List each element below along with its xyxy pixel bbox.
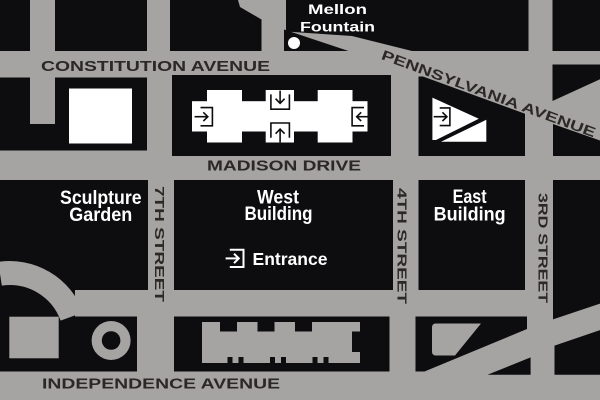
svg-text:MADISON DRIVE: MADISON DRIVE xyxy=(207,158,361,174)
svg-text:Garden: Garden xyxy=(69,205,132,226)
svg-text:INDEPENDENCE AVENUE: INDEPENDENCE AVENUE xyxy=(42,377,280,393)
svg-text:Building: Building xyxy=(434,205,506,226)
svg-text:Entrance: Entrance xyxy=(253,249,328,269)
svg-text:3RD STREET: 3RD STREET xyxy=(536,193,551,303)
svg-text:Mellon: Mellon xyxy=(308,1,367,17)
svg-text:Fountain: Fountain xyxy=(300,18,375,34)
svg-text:4TH STREET: 4TH STREET xyxy=(394,188,409,304)
svg-text:Building: Building xyxy=(245,204,313,225)
svg-text:CONSTITUTION AVENUE: CONSTITUTION AVENUE xyxy=(41,58,270,75)
svg-text:7TH STREET: 7TH STREET xyxy=(152,186,167,302)
